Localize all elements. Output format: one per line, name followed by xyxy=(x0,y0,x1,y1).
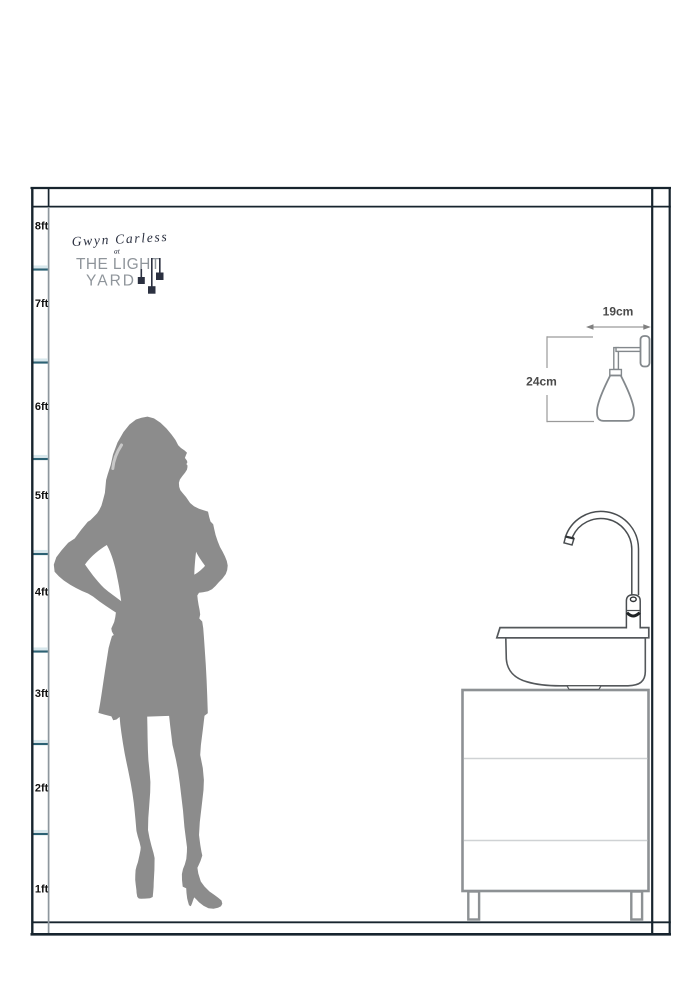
svg-text:5ft: 5ft xyxy=(35,490,49,502)
svg-text:YARD: YARD xyxy=(86,273,136,290)
svg-text:2ft: 2ft xyxy=(35,783,49,795)
svg-text:3ft: 3ft xyxy=(35,688,49,700)
svg-text:1ft: 1ft xyxy=(35,884,49,896)
svg-text:24cm: 24cm xyxy=(526,375,557,389)
svg-text:at: at xyxy=(114,247,121,256)
svg-text:6ft: 6ft xyxy=(35,401,49,413)
svg-text:4ft: 4ft xyxy=(35,587,49,599)
svg-text:8ft: 8ft xyxy=(35,221,49,233)
svg-text:THE LIGHT: THE LIGHT xyxy=(76,256,162,273)
svg-text:7ft: 7ft xyxy=(35,298,49,310)
svg-text:19cm: 19cm xyxy=(603,305,634,319)
